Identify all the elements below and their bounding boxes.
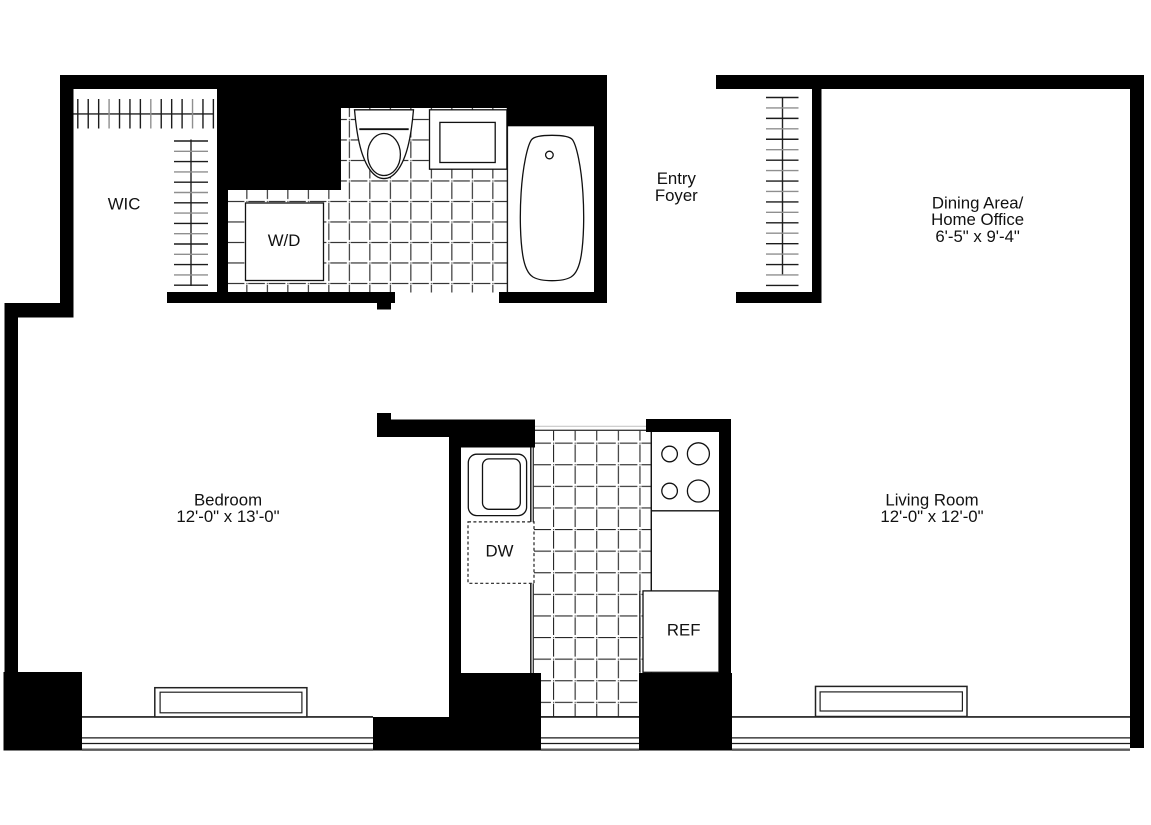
svg-text:12'-0" x 13'-0": 12'-0" x 13'-0": [176, 507, 279, 526]
svg-text:REF: REF: [667, 621, 701, 640]
svg-text:WIC: WIC: [108, 194, 141, 213]
svg-text:W/D: W/D: [268, 231, 301, 250]
svg-text:6'-5" x 9'-4": 6'-5" x 9'-4": [935, 227, 1020, 246]
svg-text:Foyer: Foyer: [655, 186, 698, 205]
svg-text:DW: DW: [486, 541, 514, 560]
svg-text:12'-0" x 12'-0": 12'-0" x 12'-0": [880, 507, 983, 526]
